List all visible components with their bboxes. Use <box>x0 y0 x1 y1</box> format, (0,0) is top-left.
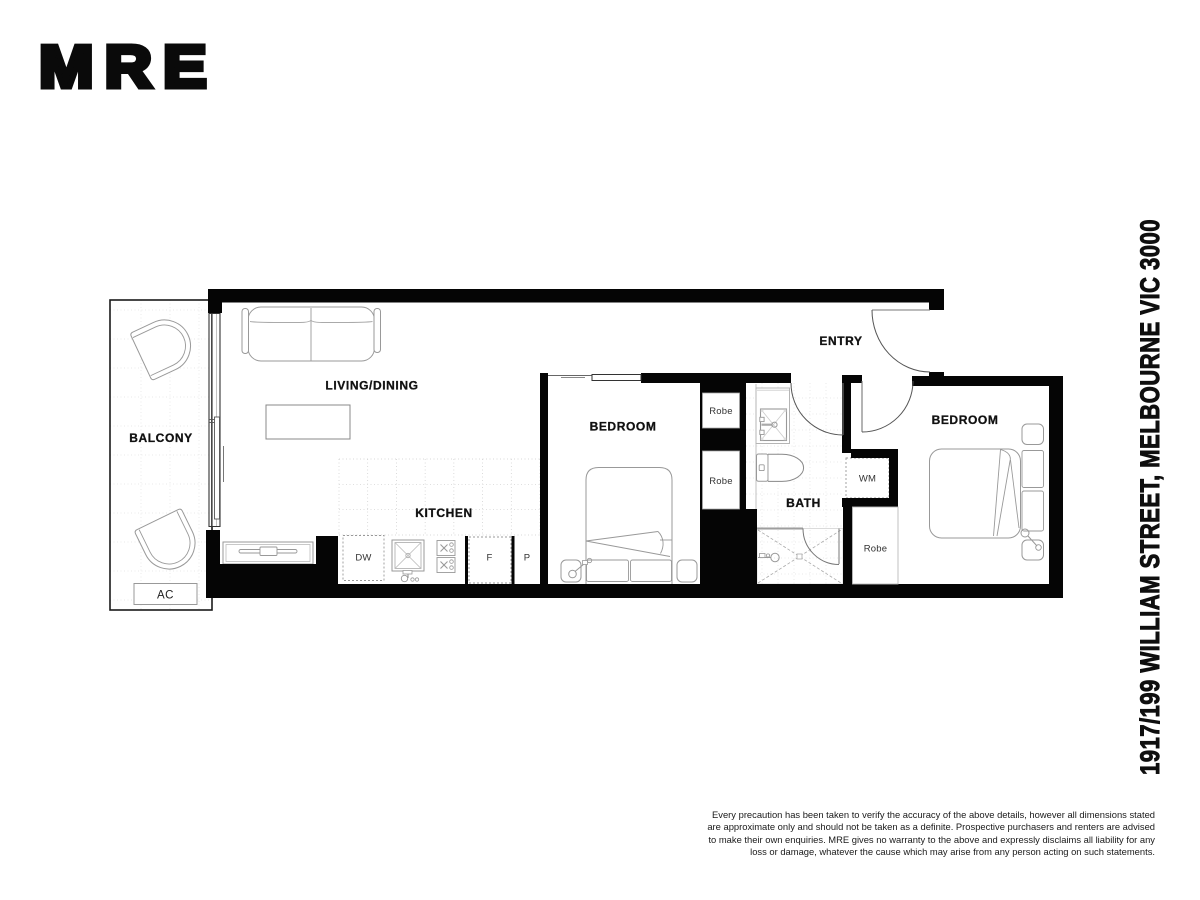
svg-text:LIVING/DINING: LIVING/DINING <box>325 379 418 393</box>
svg-text:BEDROOM: BEDROOM <box>932 413 999 427</box>
svg-text:KITCHEN: KITCHEN <box>415 506 473 520</box>
svg-text:P: P <box>524 553 531 564</box>
svg-text:BEDROOM: BEDROOM <box>590 420 657 434</box>
svg-text:Robe: Robe <box>709 406 733 417</box>
svg-text:DW: DW <box>355 553 371 564</box>
svg-text:BALCONY: BALCONY <box>129 431 193 445</box>
svg-text:WM: WM <box>859 474 876 485</box>
svg-text:BATH: BATH <box>786 496 821 510</box>
svg-text:AC: AC <box>157 590 174 602</box>
svg-text:F: F <box>486 553 492 564</box>
svg-text:Robe: Robe <box>864 544 888 555</box>
svg-text:ENTRY: ENTRY <box>819 334 862 348</box>
svg-text:Robe: Robe <box>709 476 733 487</box>
